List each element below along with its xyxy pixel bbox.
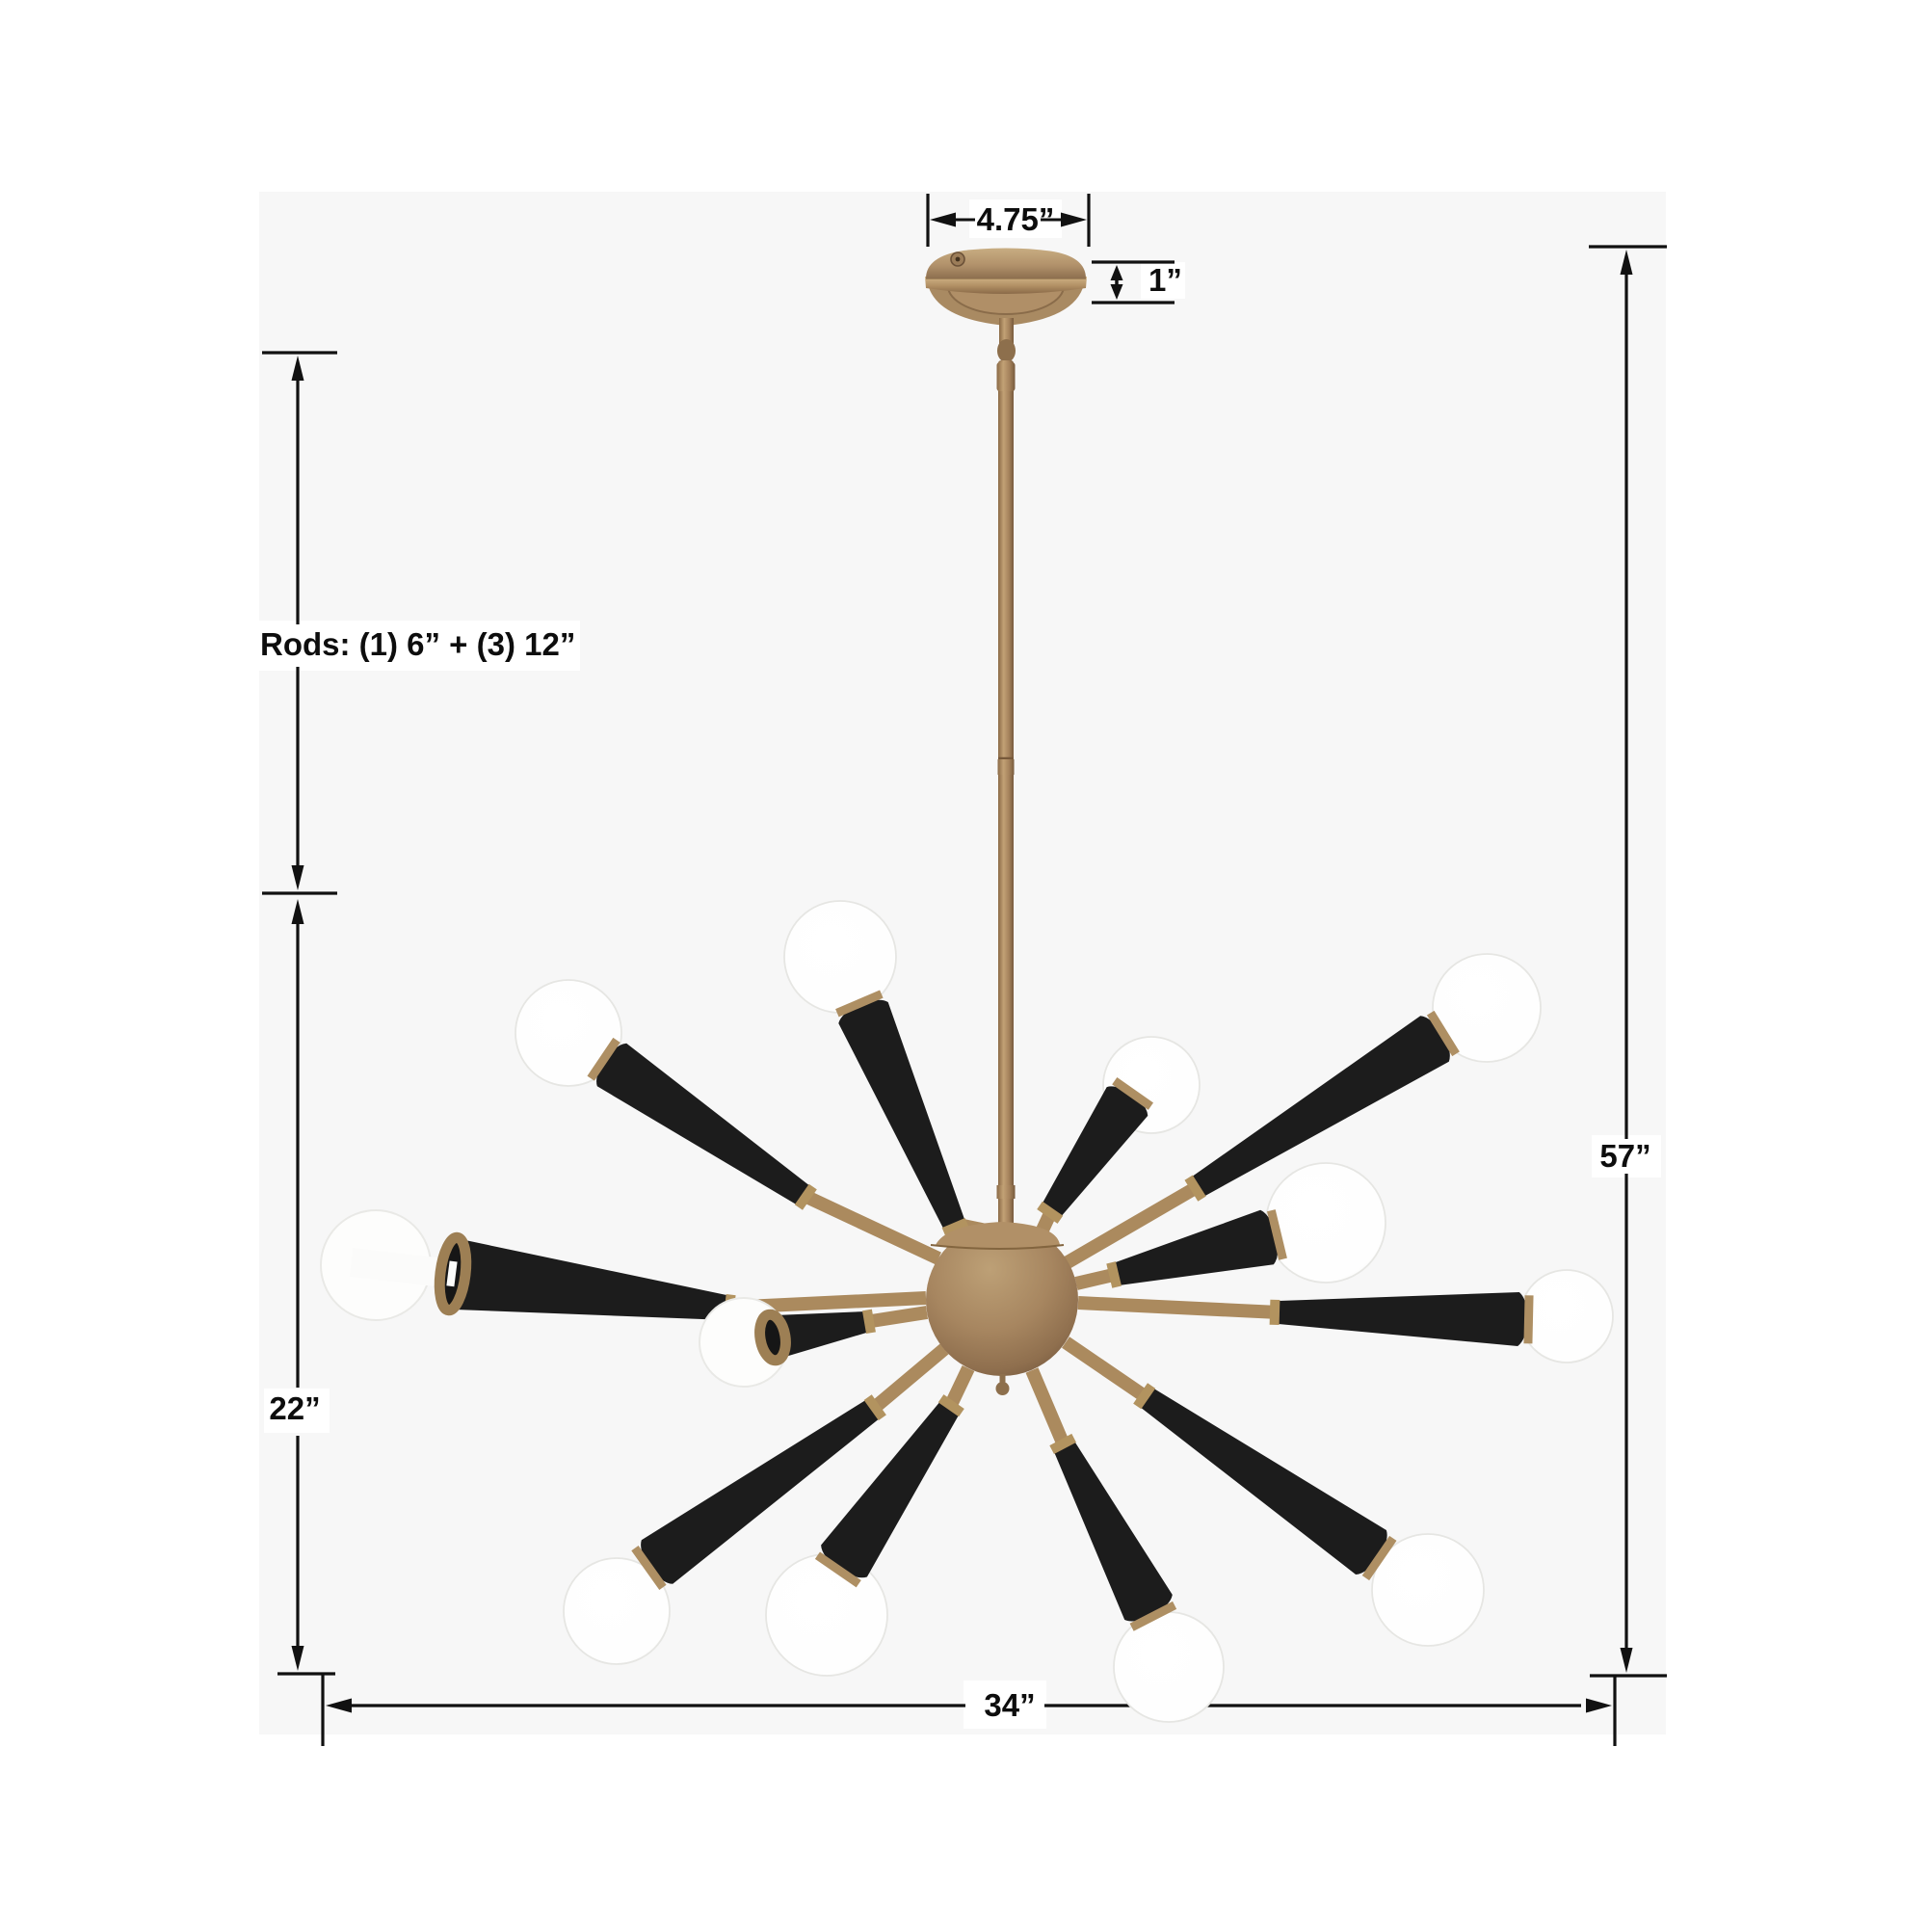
svg-text:34”: 34”	[984, 1687, 1035, 1723]
svg-text:1”: 1”	[1148, 262, 1182, 298]
svg-text:4.75”: 4.75”	[977, 201, 1055, 237]
svg-text:Rods: (1) 6” + (3) 12”: Rods: (1) 6” + (3) 12”	[260, 626, 575, 662]
svg-text:57”: 57”	[1599, 1138, 1650, 1174]
svg-text:22”: 22”	[269, 1390, 320, 1426]
